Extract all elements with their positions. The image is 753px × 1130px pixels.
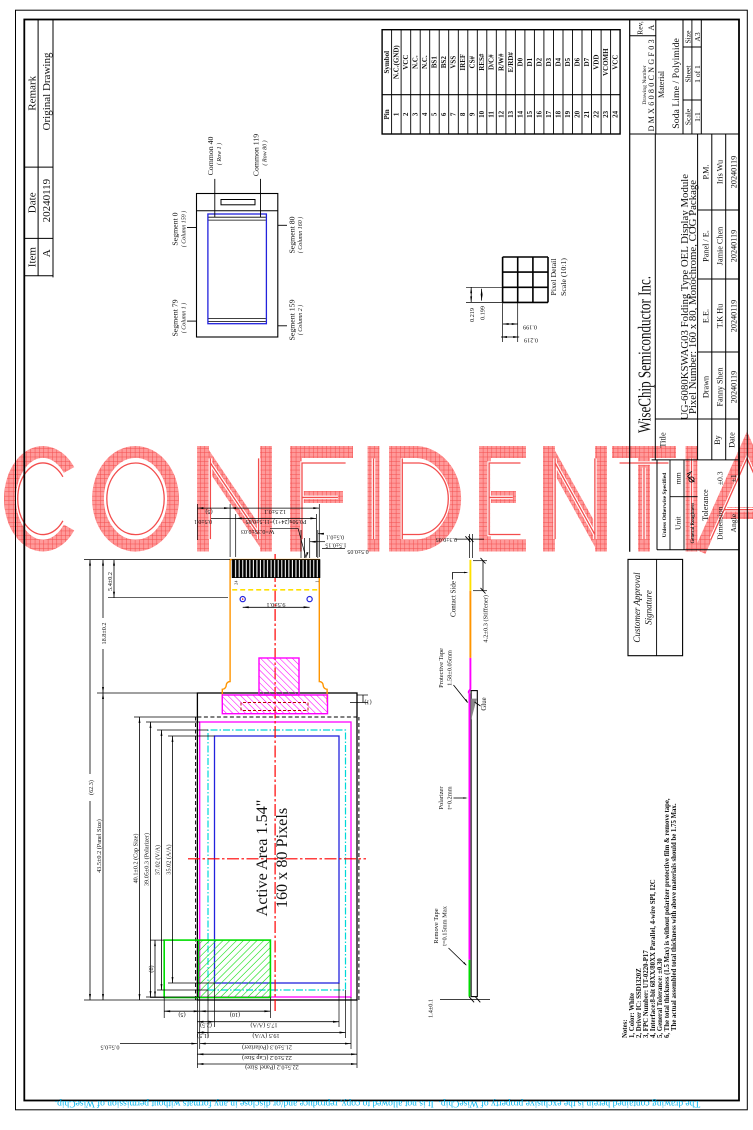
svg-text:Panel / E.: Panel / E. (702, 230, 711, 262)
svg-text:8: 8 (459, 112, 467, 116)
svg-text:(5): (5) (178, 1011, 185, 1018)
svg-text:T.K Hu: T.K Hu (716, 304, 725, 328)
svg-text:CS#: CS# (469, 55, 477, 68)
svg-text:1.5±0.15: 1.5±0.15 (325, 542, 346, 548)
svg-text:(5): (5) (205, 508, 212, 515)
svg-text:A: A (41, 249, 53, 257)
svg-text:( Column 160 ): ( Column 160 ) (297, 217, 304, 254)
svg-text:N.C.(GND): N.C.(GND) (393, 45, 401, 79)
svg-text:Title: Title (659, 432, 668, 448)
svg-text:Tolerance: Tolerance (701, 489, 710, 521)
svg-text:Scale (10:1): Scale (10:1) (559, 258, 568, 296)
svg-text:4, Interface:8-bit 68XX/80XX P: 4, Interface:8-bit 68XX/80XX Parallel, 4… (650, 879, 657, 1038)
svg-text:P0.50x(24+1)=11.5±0.05: P0.50x(24+1)=11.5±0.05 (246, 518, 307, 525)
svg-text:12: 12 (497, 110, 505, 118)
svg-text:Scale: Scale (683, 108, 692, 125)
svg-text:D0: D0 (516, 57, 524, 66)
svg-text:Soda Lime / Polyimide: Soda Lime / Polyimide (671, 37, 682, 128)
svg-text:Remark: Remark (26, 75, 38, 110)
svg-text:40.1±0.2 (Cap Size): 40.1±0.2 (Cap Size) (133, 834, 140, 884)
svg-text:(1): (1) (364, 699, 371, 706)
svg-text:39.05±0.3 (Polarizer): 39.05±0.3 (Polarizer) (144, 833, 151, 886)
svg-text:Unit: Unit (674, 516, 683, 530)
svg-text:22.5±0.2 (Cap Size): 22.5±0.2 (Cap Size) (242, 1054, 292, 1061)
svg-text:20240119: 20240119 (730, 230, 739, 262)
svg-text:22.5±0.2 (Panel Size): 22.5±0.2 (Panel Size) (245, 1064, 299, 1071)
svg-text:16: 16 (535, 110, 543, 118)
svg-text:0.5±0.05: 0.5±0.05 (347, 548, 368, 554)
svg-text:20240119: 20240119 (41, 178, 53, 222)
svg-text:7: 7 (450, 112, 458, 116)
svg-text:D7: D7 (583, 57, 591, 66)
svg-text:( Column 159 ): ( Column 159 ) (181, 211, 188, 248)
svg-text:Iris Wu: Iris Wu (716, 160, 725, 184)
svg-text:D/C#: D/C# (488, 54, 496, 70)
svg-text:Remove Tape: Remove Tape (433, 908, 440, 943)
svg-text:13: 13 (507, 110, 515, 118)
svg-text:Size: Size (683, 30, 692, 44)
svg-text:Segment 0: Segment 0 (171, 212, 180, 245)
svg-text:(2.5): (2.5) (200, 1021, 212, 1028)
svg-text:VCC: VCC (612, 55, 620, 70)
svg-text:Segment 159: Segment 159 (288, 299, 297, 340)
svg-text:0.199: 0.199 (523, 324, 537, 331)
svg-text:Glue: Glue (481, 697, 488, 710)
svg-text:Original Drawing: Original Drawing (41, 52, 53, 130)
svg-text:19: 19 (564, 110, 572, 118)
svg-text:0.5±0.1: 0.5±0.1 (194, 518, 212, 524)
svg-text:Sheet: Sheet (683, 65, 692, 83)
svg-text:General Roughness: General Roughness (691, 503, 696, 544)
svg-text:Common 119: Common 119 (252, 134, 261, 176)
svg-text:3: 3 (412, 112, 420, 116)
svg-text:5: 5 (431, 112, 439, 116)
svg-text:Protective Tape: Protective Tape (438, 648, 445, 688)
svg-text:1.58±0.05mm: 1.58±0.05mm (447, 650, 454, 686)
svg-text:Jamie Chen: Jamie Chen (716, 227, 725, 265)
svg-text:20240119: 20240119 (730, 156, 739, 188)
svg-text:Active Area 1.54": Active Area 1.54" (253, 800, 271, 917)
svg-text:( Column 2 ): ( Column 2 ) (297, 305, 304, 336)
svg-text:Fanny Shen: Fanny Shen (716, 368, 725, 407)
svg-text:Dimension: Dimension (716, 506, 725, 540)
svg-text:A: A (647, 25, 656, 31)
svg-text:9.5±0.1: 9.5±0.1 (267, 601, 286, 608)
svg-text:160 x 80 Pixels: 160 x 80 Pixels (273, 808, 291, 908)
svg-text:5.4±0.2: 5.4±0.2 (107, 572, 114, 591)
svg-text:11: 11 (488, 111, 496, 118)
svg-text:24: 24 (612, 110, 620, 118)
svg-text:20: 20 (573, 110, 581, 118)
svg-text:19.5 (V/A): 19.5 (V/A) (252, 1032, 279, 1039)
svg-text:Pin: Pin (383, 109, 391, 119)
svg-text:BS1: BS1 (431, 56, 439, 69)
svg-text:A3: A3 (693, 32, 702, 41)
svg-text:Contact Side: Contact Side (450, 581, 458, 617)
svg-text:( Row 1 ): ( Row 1 ) (216, 143, 223, 165)
svg-text:0.5±0.1: 0.5±0.1 (326, 534, 344, 540)
svg-text:20240119: 20240119 (730, 371, 739, 403)
svg-text:E/RD#: E/RD# (507, 52, 515, 73)
svg-text:±0.3: ±0.3 (716, 471, 725, 485)
svg-text:Date: Date (728, 432, 737, 448)
svg-text:0.219: 0.219 (524, 337, 538, 344)
svg-text:Signature: Signature (644, 590, 654, 625)
svg-text:(8): (8) (148, 965, 155, 972)
svg-text:18.8±0.2: 18.8±0.2 (101, 623, 108, 645)
svg-text:BS2: BS2 (440, 56, 448, 69)
svg-text:24: 24 (234, 580, 239, 585)
svg-text:43.5±0.2 (Panel Size): 43.5±0.2 (Panel Size) (96, 819, 103, 873)
svg-text:2, Driver IC: SSD1320Z: 2, Driver IC: SSD1320Z (636, 968, 643, 1038)
svg-text:Segment 80: Segment 80 (288, 216, 297, 253)
svg-text:17.5 (A/A): 17.5 (A/A) (250, 1021, 277, 1028)
svg-text:17: 17 (545, 110, 553, 118)
svg-text:10: 10 (478, 110, 486, 118)
svg-text:RES#: RES# (478, 53, 486, 71)
svg-text:1 of 1: 1 of 1 (693, 65, 702, 83)
svg-text:mm: mm (674, 472, 683, 484)
svg-text:Segment 79: Segment 79 (171, 299, 180, 336)
svg-text:6: 6 (440, 112, 448, 116)
svg-text:Material: Material (657, 70, 666, 98)
svg-text:WiseChip Semiconductor Inc.: WiseChip Semiconductor Inc. (635, 276, 655, 433)
svg-text:Date: Date (26, 192, 38, 213)
svg-text:VSS: VSS (450, 56, 458, 69)
svg-text:12.5±0.1: 12.5±0.1 (264, 508, 286, 515)
svg-text:D6: D6 (573, 57, 581, 66)
svg-text:±1: ±1 (729, 474, 738, 482)
svg-text:t=0.2mm: t=0.2mm (447, 786, 454, 809)
svg-text:D5: D5 (564, 57, 572, 66)
svg-text:D2: D2 (535, 57, 543, 66)
svg-text:Symbol: Symbol (383, 51, 391, 74)
svg-text:Polarizer: Polarizer (438, 786, 445, 810)
svg-text:(10): (10) (230, 1011, 240, 1018)
svg-text:R/W#: R/W# (497, 53, 505, 71)
svg-text:D1: D1 (526, 57, 534, 66)
svg-text:14: 14 (516, 110, 524, 118)
svg-text:0.219: 0.219 (469, 308, 476, 322)
svg-text:18: 18 (554, 110, 562, 118)
svg-text:Customer Approval: Customer Approval (632, 572, 642, 643)
svg-text:23: 23 (602, 110, 610, 118)
svg-text:t=0.15mm Max: t=0.15mm Max (442, 905, 449, 946)
svg-text:Angle: Angle (729, 513, 738, 532)
svg-text:Notes:: Notes: (622, 1020, 629, 1039)
svg-text:4.2±0.3 (Stiffener): 4.2±0.3 (Stiffener) (483, 595, 490, 643)
svg-text:3, FPC Number: UT-0220-P17: 3, FPC Number: UT-0220-P17 (643, 950, 650, 1038)
svg-text:W=0.35±0.03: W=0.35±0.03 (241, 528, 274, 534)
svg-text:5, General Tolerance: ±0.30: 5, General Tolerance: ±0.30 (657, 958, 664, 1038)
svg-text:Common 40: Common 40 (206, 137, 215, 176)
svg-text:1: 1 (393, 112, 401, 116)
svg-text:35.02 (A/A): 35.02 (A/A) (166, 844, 173, 874)
svg-text:Pixel Number: 160 x 80, Monoch: Pixel Number: 160 x 80, Monochrome, COG … (687, 180, 699, 414)
svg-text:(1.5): (1.5) (197, 1032, 209, 1039)
svg-text:Rev,: Rev, (636, 21, 645, 35)
svg-text:1.4±0.1: 1.4±0.1 (428, 999, 435, 1018)
svg-text:2: 2 (402, 112, 410, 116)
svg-text:20240119: 20240119 (730, 300, 739, 332)
svg-text:6, The total thickness (1.5 Ma: 6, The total thickness (1.5 Max) is with… (664, 798, 671, 1038)
svg-text:Item: Item (26, 247, 38, 268)
svg-text:15: 15 (526, 110, 534, 118)
svg-text:By: By (713, 434, 722, 444)
svg-text:22: 22 (593, 110, 601, 118)
svg-text:N.C.: N.C. (421, 55, 429, 69)
svg-text:4: 4 (421, 112, 429, 116)
svg-text:37.02 (V/A): 37.02 (V/A) (155, 845, 162, 875)
svg-text:(62.3): (62.3) (88, 780, 95, 795)
svg-text:1: 1 (315, 581, 320, 583)
svg-text:VCC: VCC (402, 55, 410, 70)
svg-text:D3: D3 (545, 57, 553, 66)
svg-text:2-∅0.8±0.1: 2-∅0.8±0.1 (0, 1118, 11, 1130)
svg-text:IREF: IREF (459, 54, 467, 71)
svg-text:VDD: VDD (593, 55, 601, 70)
svg-text:The actual assembled total thi: The actual assembled total thickness wit… (671, 803, 678, 1031)
svg-text:P.M.: P.M. (702, 164, 711, 179)
svg-text:21.5±0.3 (Polarizer): 21.5±0.3 (Polarizer) (242, 1043, 292, 1050)
svg-text:VCOMH: VCOMH (602, 48, 610, 76)
svg-text:0.5±0.5: 0.5±0.5 (101, 1043, 120, 1050)
svg-text:( Column 1 ): ( Column 1 ) (181, 303, 188, 334)
svg-text:Unless Otherwise Specified: Unless Otherwise Specified (662, 472, 668, 538)
svg-text:( Row 80 ): ( Row 80 ) (262, 140, 269, 165)
svg-text:N.C.: N.C. (412, 55, 420, 69)
svg-text:1, Color: White: 1, Color: White (629, 993, 636, 1038)
svg-text:0.199: 0.199 (479, 306, 486, 320)
svg-text:DMX6080CNGF03: DMX6080CNGF03 (647, 39, 656, 131)
svg-text:0.3±0.05: 0.3±0.05 (436, 536, 457, 542)
svg-text:D4: D4 (554, 57, 562, 66)
svg-text:E.E.: E.E. (702, 309, 711, 323)
svg-text:Drawn: Drawn (702, 376, 711, 398)
svg-text:1:1: 1:1 (693, 112, 702, 122)
svg-text:21: 21 (583, 110, 591, 118)
svg-text:Pixel Detail: Pixel Detail (549, 258, 558, 296)
svg-text:9: 9 (469, 112, 477, 116)
